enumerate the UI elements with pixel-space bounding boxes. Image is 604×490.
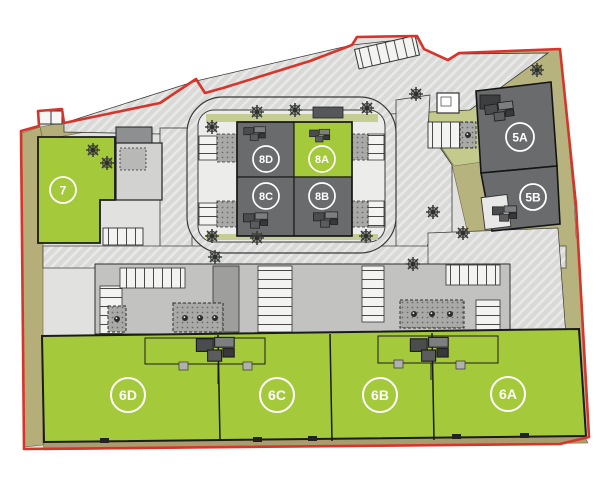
- tree-icon: [426, 205, 440, 219]
- tree-icon: [250, 231, 264, 245]
- tree-icon: [250, 105, 264, 119]
- tree-icon: [409, 87, 423, 101]
- unit-8c[interactable]: [237, 177, 294, 236]
- svg-text:6B: 6B: [371, 387, 389, 403]
- accessible-parking-bay: [173, 303, 223, 332]
- tree-icon: [406, 257, 420, 271]
- parking-row-below-7: [103, 228, 143, 245]
- svg-text:8D: 8D: [259, 154, 273, 166]
- tree-icon: [360, 101, 374, 115]
- site-plan: 7 8D 8A 8C 8B 5A 5B 6D: [0, 0, 604, 490]
- svg-text:7: 7: [60, 184, 67, 198]
- tree-icon: [86, 143, 100, 157]
- svg-text:5A: 5A: [512, 131, 528, 145]
- tree-icon: [205, 229, 219, 243]
- svg-text:8A: 8A: [315, 154, 329, 166]
- tree-icon: [456, 226, 470, 240]
- central-parking-court: [95, 264, 510, 334]
- tree-icon: [359, 229, 373, 243]
- svg-text:5B: 5B: [525, 191, 541, 205]
- accessible-parking-bay: [108, 306, 126, 332]
- svg-text:6C: 6C: [268, 387, 286, 403]
- svg-text:8C: 8C: [259, 191, 273, 203]
- parking-stalls-top-left: [39, 111, 62, 124]
- tree-icon: [530, 63, 544, 77]
- svg-text:6A: 6A: [499, 386, 517, 402]
- svg-text:6D: 6D: [119, 387, 137, 403]
- tree-icon: [205, 120, 219, 134]
- tree-icon: [288, 103, 302, 117]
- svg-text:8B: 8B: [315, 191, 329, 203]
- tree-icon: [100, 156, 114, 170]
- accessible-parking-bay: [400, 300, 464, 328]
- tree-icon: [208, 250, 222, 264]
